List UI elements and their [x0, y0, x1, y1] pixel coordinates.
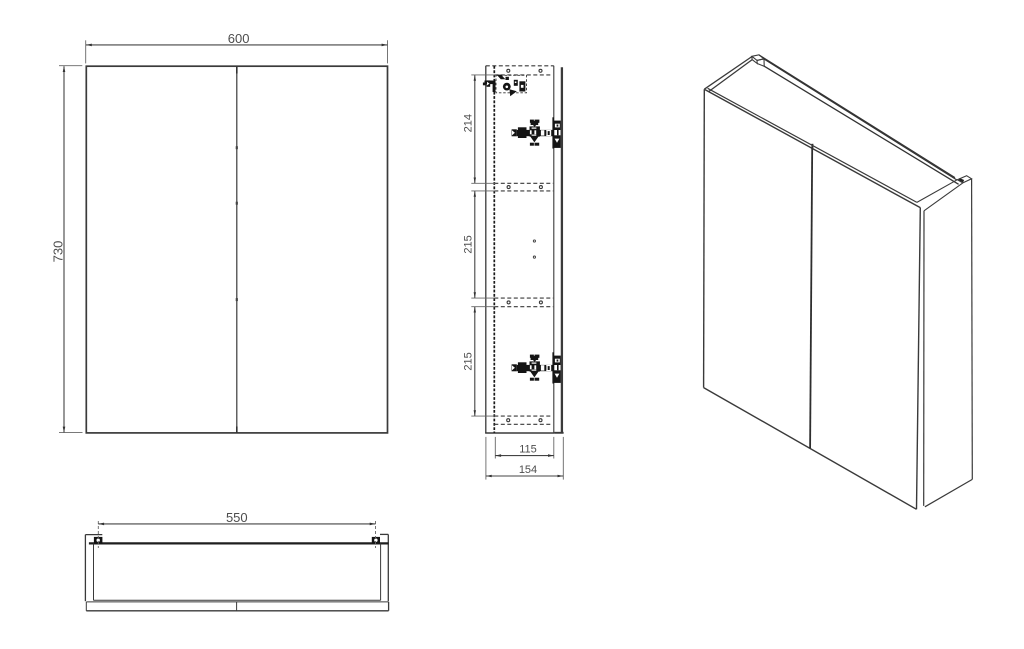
svg-text:550: 550 — [226, 510, 248, 525]
svg-text:214: 214 — [463, 114, 475, 132]
svg-text:730: 730 — [51, 241, 66, 263]
svg-text:154: 154 — [519, 464, 537, 476]
svg-text:215: 215 — [463, 352, 475, 370]
svg-text:600: 600 — [228, 31, 250, 46]
svg-text:215: 215 — [463, 235, 475, 253]
svg-text:115: 115 — [519, 443, 537, 455]
